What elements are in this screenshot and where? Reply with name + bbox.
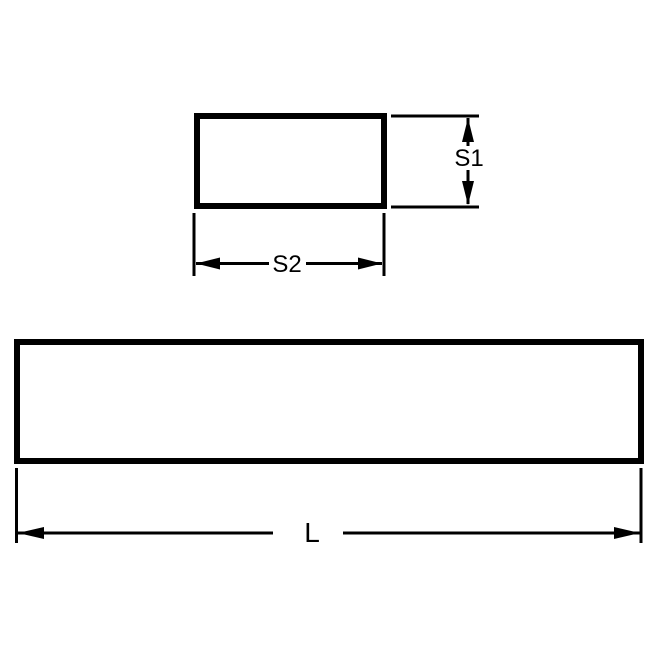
s1-arrowhead-down-icon (462, 181, 474, 205)
keystock-dimension-diagram: S1 S2 L (0, 0, 670, 670)
s1-label: S1 (454, 145, 483, 172)
s2-label: S2 (272, 251, 301, 278)
l-label: L (304, 517, 320, 548)
drawing-canvas: S1 S2 L (0, 0, 670, 670)
s2-arrowhead-right-icon (358, 258, 382, 270)
cross-section-rect (197, 116, 384, 206)
l-arrowhead-left-icon (18, 527, 44, 539)
s1-arrowhead-up-icon (462, 118, 474, 142)
side-view-rect (17, 342, 641, 461)
s2-arrowhead-left-icon (196, 258, 220, 270)
l-arrowhead-right-icon (614, 527, 640, 539)
